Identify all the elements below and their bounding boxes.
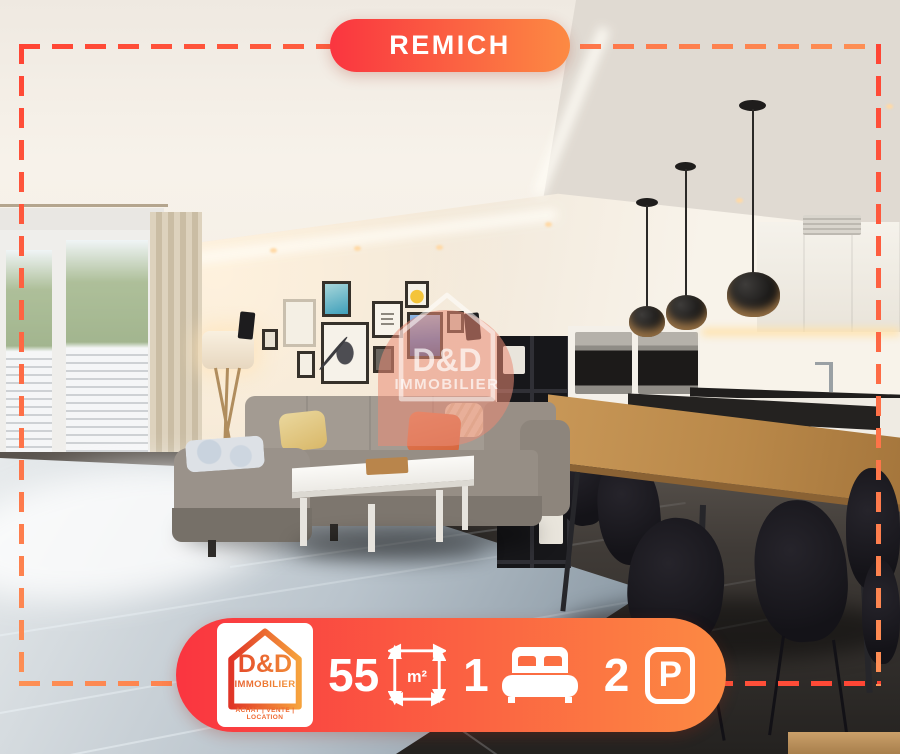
watermark-brand-sub: IMMOBILIER bbox=[372, 376, 522, 393]
under-cabinet-light bbox=[702, 328, 900, 336]
agency-brand-sub: IMMOBILIER bbox=[217, 679, 313, 690]
area-unit: m² bbox=[407, 668, 428, 686]
coffee-table-leg bbox=[436, 490, 443, 542]
info-banner: D&D IMMOBILIER ACHAT | VENTE | LOCATION … bbox=[176, 618, 726, 732]
pendant-cord bbox=[685, 169, 687, 299]
parking-sign-icon: P bbox=[645, 647, 695, 704]
picture-frame bbox=[262, 329, 278, 350]
yellow-cushion bbox=[278, 410, 328, 453]
agency-brand: D&D bbox=[217, 650, 313, 679]
coffee-table-leg bbox=[368, 504, 375, 552]
coffee-table-leg bbox=[462, 484, 468, 530]
bedrooms-value: 1 bbox=[463, 652, 489, 698]
picture-frame bbox=[322, 281, 351, 317]
square-measure-icon: m² bbox=[388, 643, 446, 707]
picture-frame bbox=[283, 299, 316, 347]
recessed-spotlight bbox=[736, 198, 743, 203]
storage-box bbox=[539, 514, 563, 544]
chaise-blanket bbox=[185, 435, 265, 472]
watermark-brand: D&D bbox=[372, 344, 522, 376]
area-value: 55 bbox=[328, 652, 379, 698]
pendant-lamp-dome bbox=[629, 306, 665, 337]
recessed-spotlight bbox=[886, 104, 893, 109]
dining-chair bbox=[862, 560, 900, 664]
recessed-spotlight bbox=[545, 222, 552, 227]
dashed-border-right bbox=[876, 44, 881, 686]
agency-tagline: ACHAT | VENTE | LOCATION bbox=[217, 707, 313, 721]
recessed-spotlight bbox=[270, 248, 277, 253]
built-in-oven bbox=[638, 332, 698, 394]
faucet-spout bbox=[815, 362, 833, 365]
wall-speaker bbox=[238, 311, 256, 339]
location-label: REMICH bbox=[389, 30, 511, 61]
art-text-line bbox=[381, 323, 394, 325]
furniture-shadow bbox=[296, 536, 486, 562]
property-listing-image: D&D IMMOBILIER REMICH D&D IMMOBILIER ACH… bbox=[0, 0, 900, 754]
pendant-cord bbox=[752, 109, 754, 277]
picture-frame bbox=[297, 351, 315, 378]
pendant-lamp-dome bbox=[727, 272, 780, 317]
wooden-bench bbox=[788, 732, 900, 754]
feather-art bbox=[318, 336, 348, 371]
double-bed-icon bbox=[499, 647, 581, 703]
coffee-table-leg bbox=[300, 498, 307, 546]
location-banner: REMICH bbox=[330, 19, 570, 72]
pendant-lamp-dome bbox=[666, 295, 707, 330]
sofa-chaise-front bbox=[172, 508, 312, 542]
brand-watermark: D&D IMMOBILIER bbox=[372, 344, 522, 393]
ac-vent bbox=[803, 215, 861, 235]
art-text-line bbox=[381, 313, 395, 315]
pendant-cord bbox=[646, 205, 648, 309]
kitchen-faucet bbox=[829, 362, 833, 392]
sofa-leg bbox=[208, 540, 216, 557]
curtain-rod bbox=[0, 204, 168, 207]
agency-logo: D&D IMMOBILIER ACHAT | VENTE | LOCATION bbox=[217, 623, 313, 727]
picture-frame-feather bbox=[321, 322, 369, 384]
wooden-tray bbox=[366, 457, 409, 475]
recessed-spotlight bbox=[354, 246, 361, 251]
recessed-spotlight bbox=[436, 245, 443, 250]
parking-value: 2 bbox=[604, 652, 630, 698]
art-text-line bbox=[381, 318, 393, 320]
built-in-oven bbox=[575, 332, 632, 394]
parking-letter: P bbox=[659, 655, 682, 695]
dashed-border-left bbox=[19, 44, 24, 686]
